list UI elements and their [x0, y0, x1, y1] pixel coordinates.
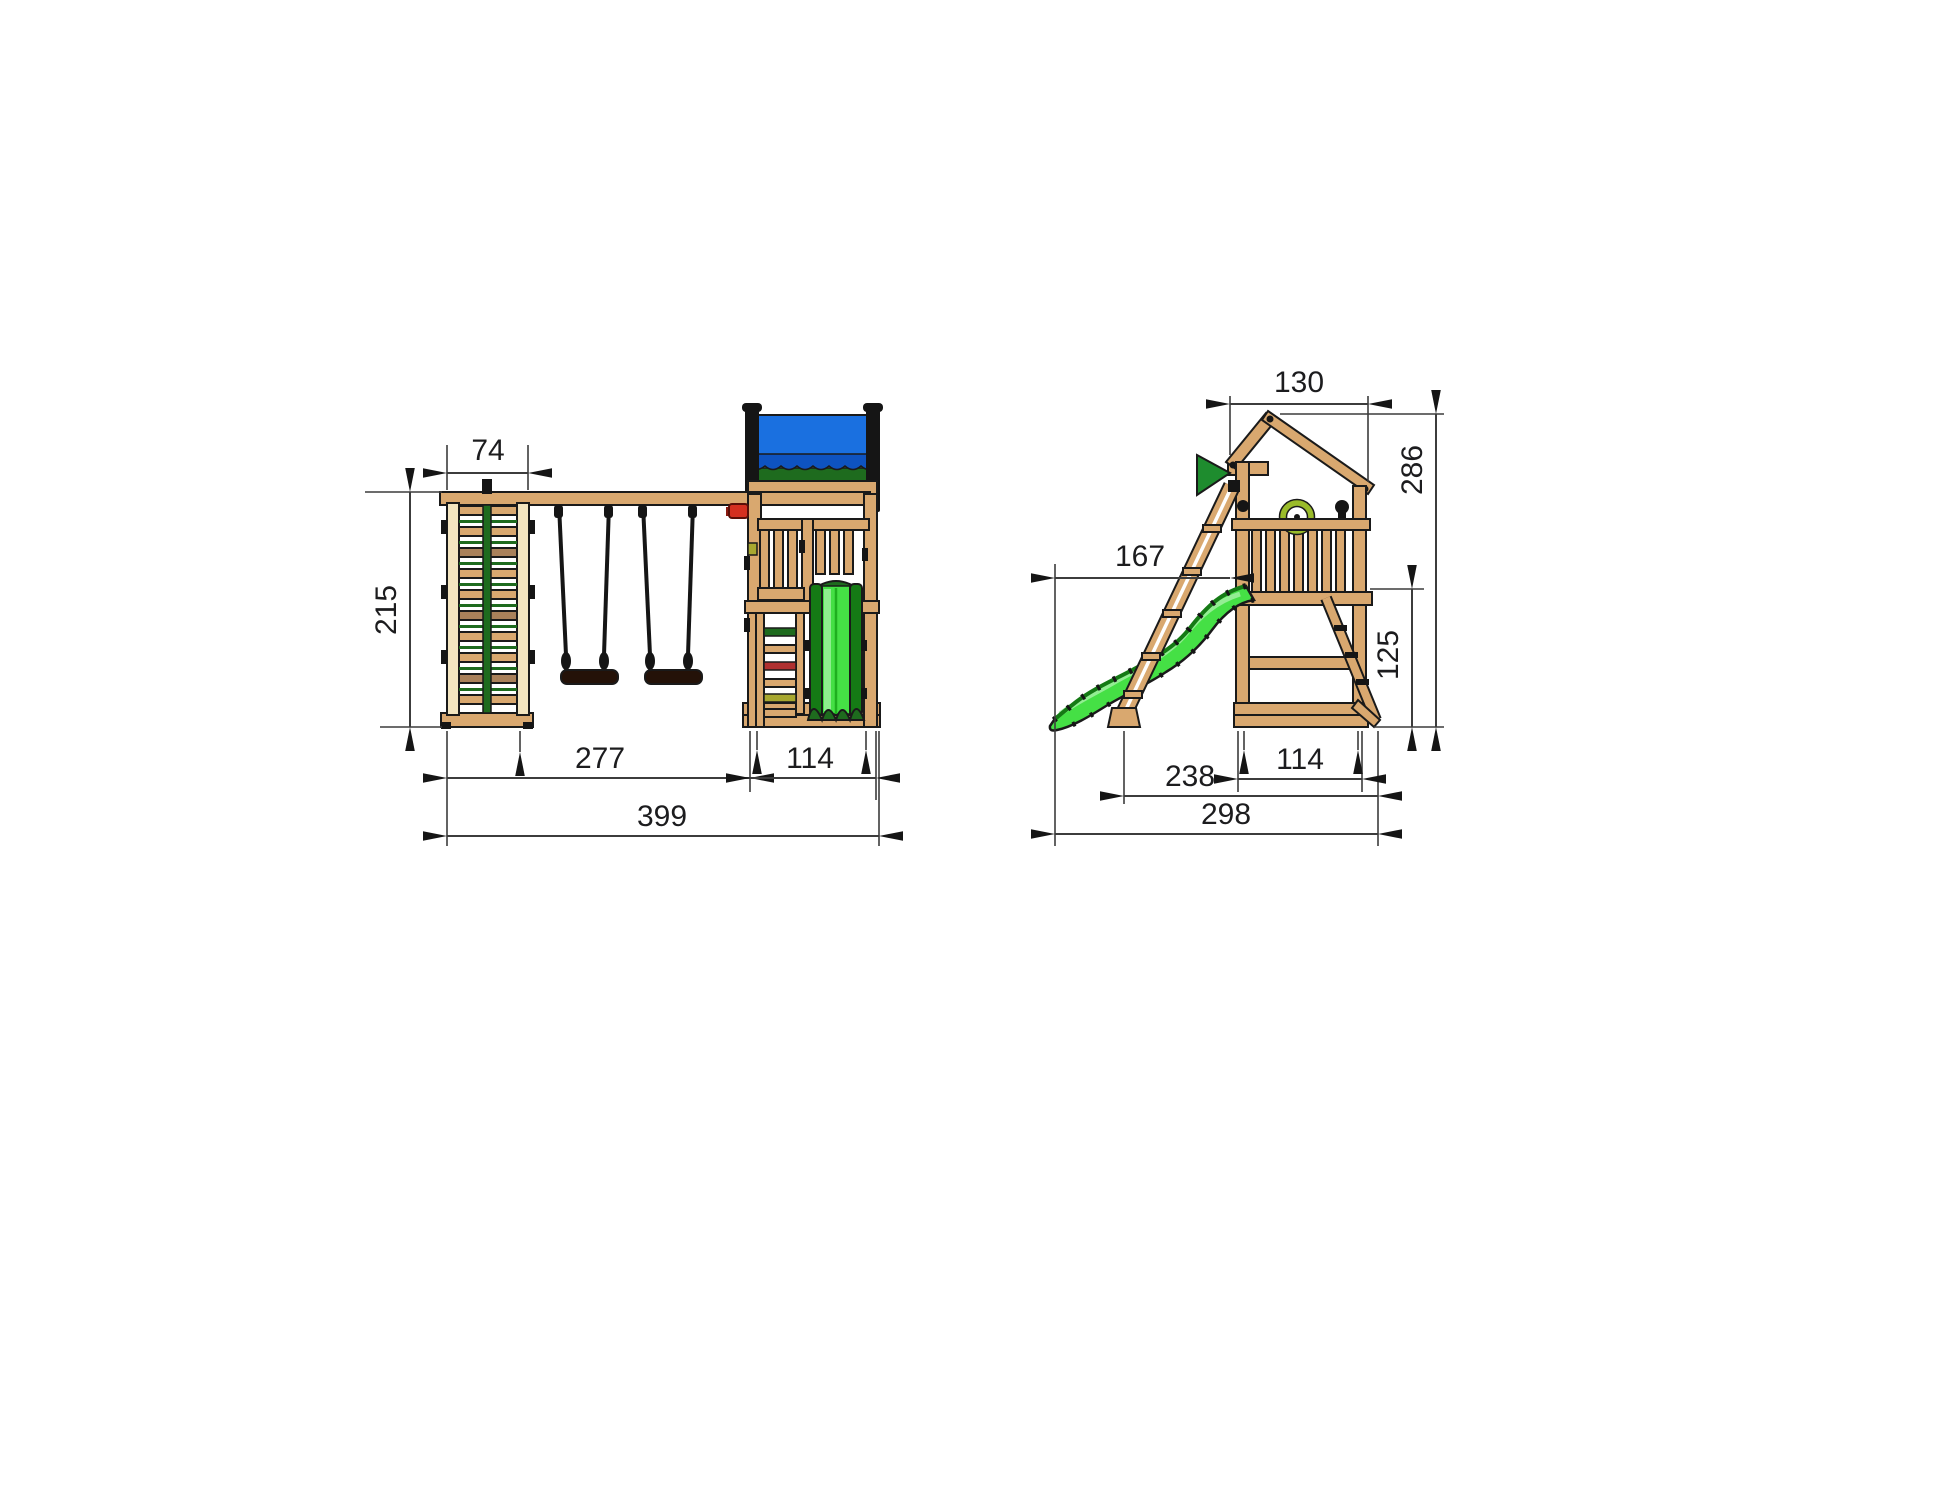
ladder-tread [1124, 691, 1142, 698]
dim-label-platform-height: 125 [1372, 630, 1405, 680]
roof-rafter-right [1262, 411, 1374, 494]
diagram-svg: 74 215 277 114 399 [0, 0, 1946, 1496]
mid-beam [1249, 657, 1353, 669]
dim-label-roof-depth: 130 [1274, 366, 1324, 399]
dim-label-swing-span: 277 [575, 742, 625, 775]
swing-seat [645, 670, 702, 684]
swing-right [638, 505, 702, 684]
swing-seat [561, 670, 618, 684]
side-view: 130 286 125 167 114 238 298 [1050, 366, 1444, 846]
tower-side [1230, 462, 1380, 727]
swing-beam [440, 492, 870, 505]
slide-rail-left [810, 584, 822, 716]
rope-link [599, 652, 609, 670]
dim-label-total-height: 286 [1396, 445, 1429, 495]
dim-label-height: 215 [370, 585, 403, 635]
rope-fitting [554, 505, 563, 518]
brand-logo-plate [729, 504, 748, 518]
climbing-frame [441, 479, 535, 729]
dim-label-tower-width: 114 [786, 742, 834, 775]
ladder-tread [1203, 525, 1221, 532]
dim-label-total-width: 399 [637, 800, 687, 833]
playground-dimension-diagram: 74 215 277 114 399 [0, 0, 1946, 1496]
railing-bottom-rail [758, 588, 804, 600]
dim-label-slide-reach: 167 [1115, 540, 1165, 573]
frame-rail-right [517, 503, 529, 715]
front-view: 74 215 277 114 399 [365, 403, 883, 846]
rope-link [645, 652, 655, 670]
rope-link [683, 652, 693, 670]
railing-side [1232, 500, 1370, 593]
ladder-rail [796, 613, 804, 714]
tarp-green-strip [748, 468, 877, 482]
railing-top-rail-side [1232, 519, 1370, 530]
ladder-rail [756, 613, 764, 727]
rope-link [561, 652, 571, 670]
ladder-tread [1163, 610, 1181, 617]
slide-rail-right [850, 584, 862, 716]
dim-label-tower-depth: 114 [1276, 743, 1324, 776]
pole-cap [482, 479, 492, 494]
frame-rail-left [447, 503, 459, 715]
base-board-side [1234, 703, 1368, 715]
tarp-wavy-edge [748, 454, 877, 470]
base-board-side [1234, 715, 1368, 727]
rope-fitting [688, 505, 697, 518]
ladder-tread [1142, 653, 1160, 660]
tower-front [726, 494, 880, 727]
post-hinge [748, 543, 757, 555]
frame-center-pole [483, 505, 491, 713]
post-knob [1237, 500, 1249, 512]
frame-foot [523, 722, 533, 729]
frame-foot [441, 722, 451, 729]
rail-knob [1335, 500, 1349, 514]
slide-front [804, 581, 867, 720]
dim-label-climb-width: 74 [471, 434, 504, 467]
dim-label-base-depth: 238 [1165, 760, 1215, 793]
rope-fitting [638, 505, 647, 518]
swing-left [554, 505, 618, 684]
front-ladder-foot [1108, 708, 1140, 727]
rope-fitting [604, 505, 613, 518]
dim-label-total-depth: 298 [1201, 798, 1251, 831]
ladder-tread [1183, 568, 1201, 575]
tarp-blue-panel [748, 415, 877, 456]
